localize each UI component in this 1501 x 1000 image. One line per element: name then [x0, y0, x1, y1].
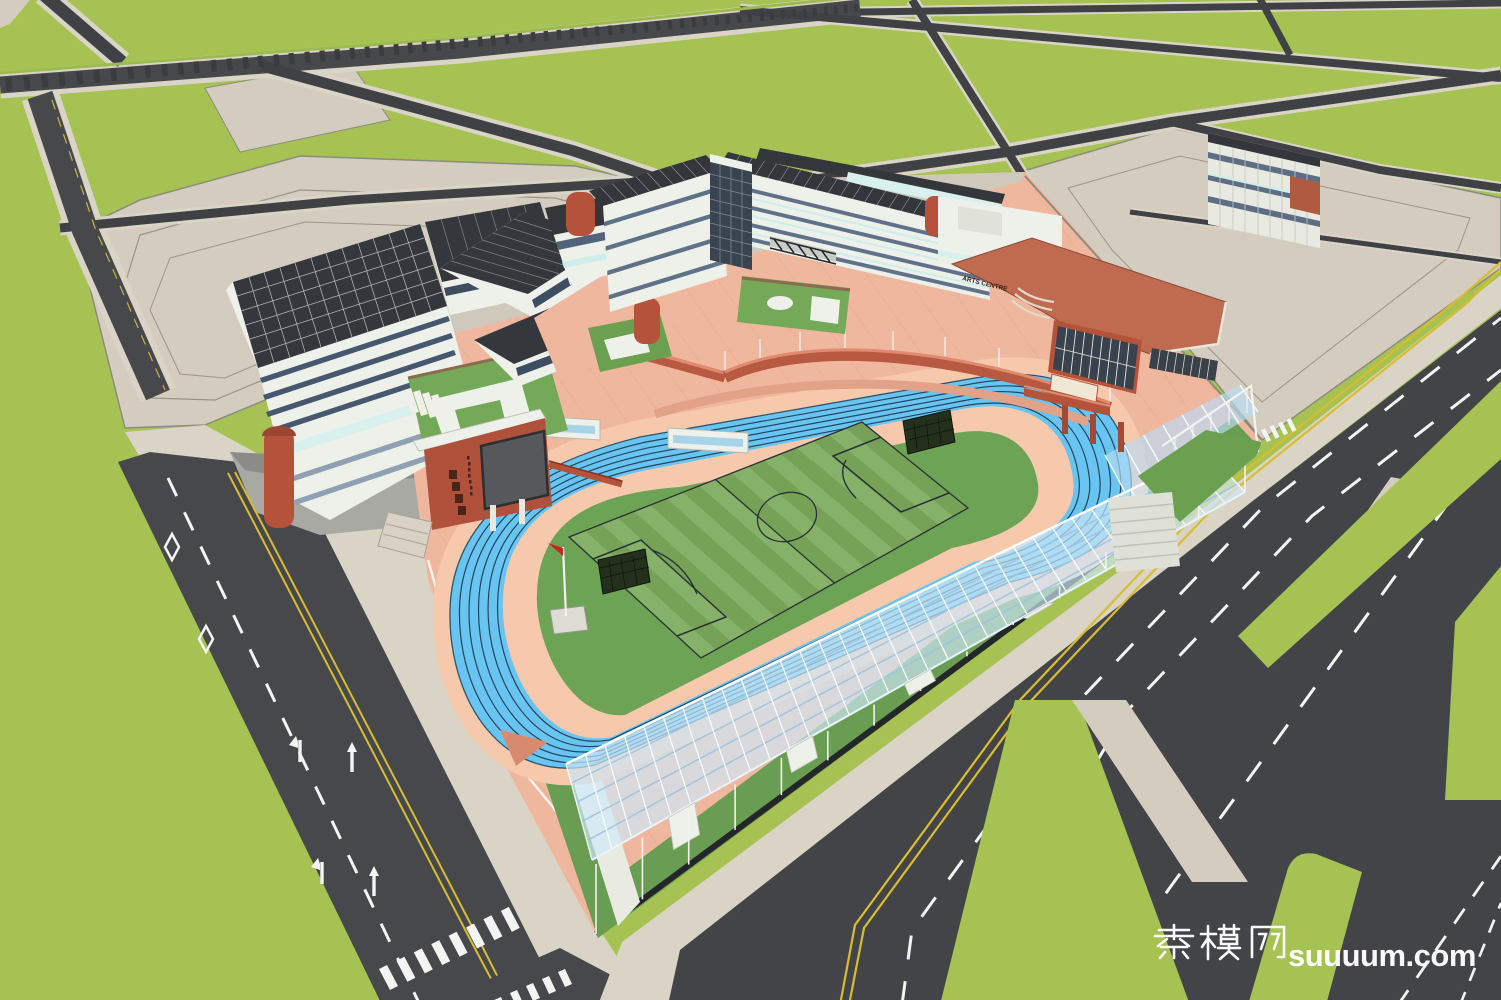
svg-text:suuuum.com: suuuum.com	[1288, 938, 1476, 973]
